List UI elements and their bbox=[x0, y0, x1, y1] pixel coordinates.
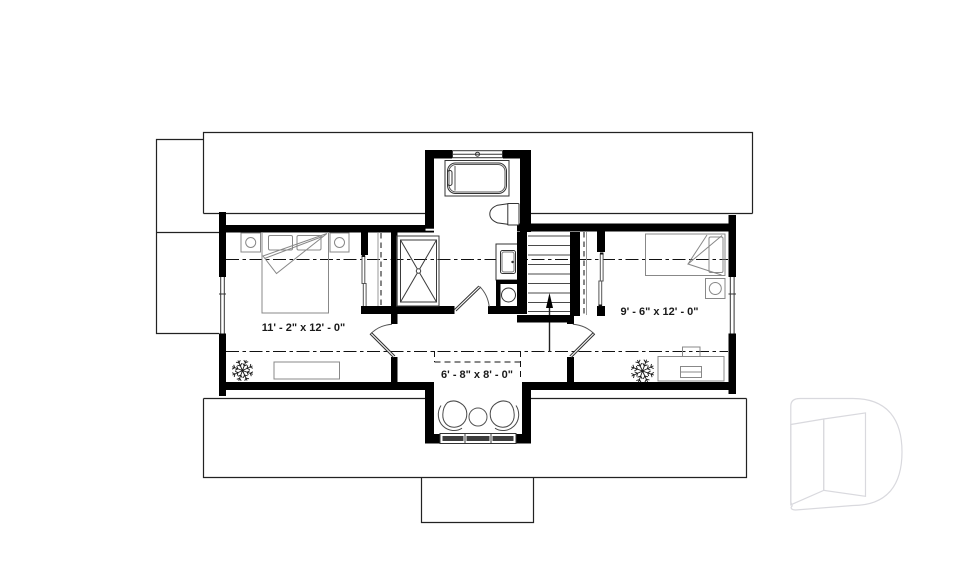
svg-text:11' - 2" x 12' - 0": 11' - 2" x 12' - 0" bbox=[262, 322, 346, 334]
svg-text:9' - 6" x 12' - 0": 9' - 6" x 12' - 0" bbox=[620, 306, 698, 318]
svg-text:6' - 8" x 8' - 0": 6' - 8" x 8' - 0" bbox=[441, 369, 513, 381]
